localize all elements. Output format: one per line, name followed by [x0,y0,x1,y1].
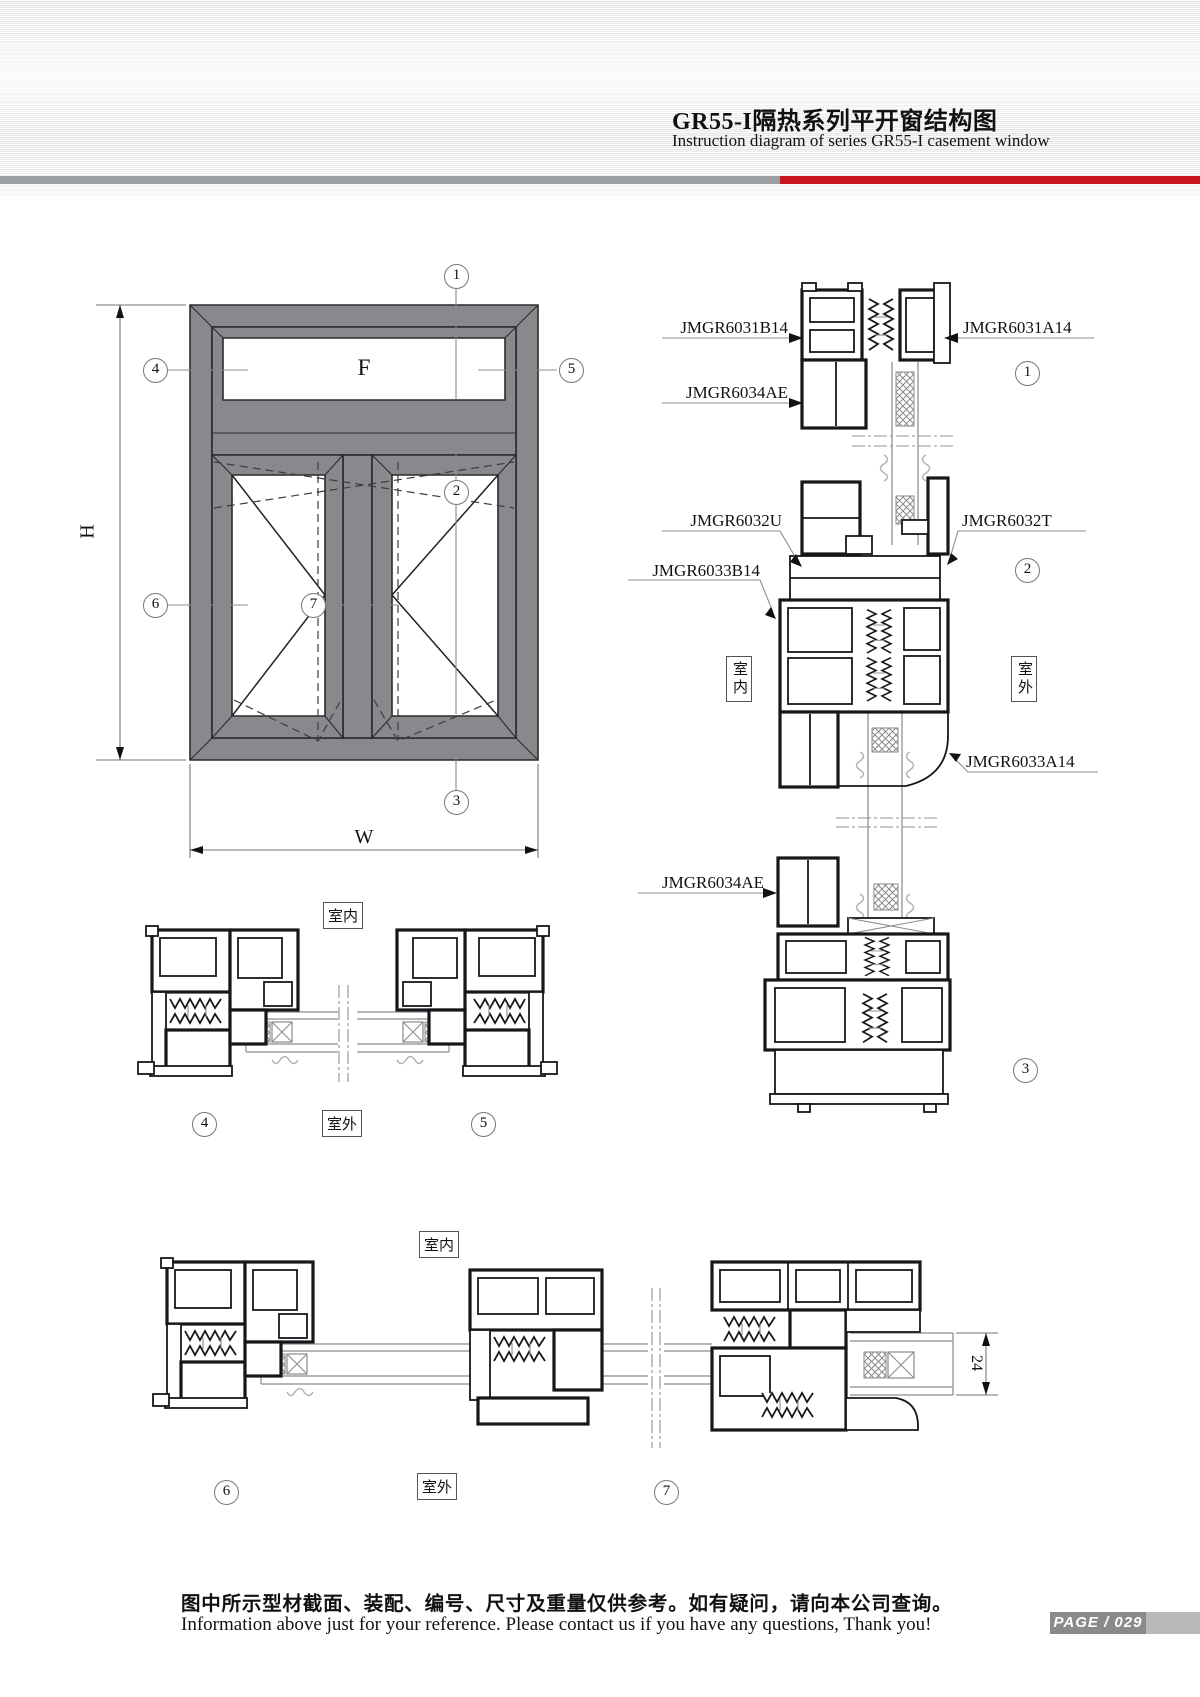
glass-thickness-label: 24 [963,1348,985,1378]
part-label-jmgr6033a14: JMGR6033A14 [966,752,1100,772]
part-label-jmgr6032u: JMGR6032U [658,511,782,531]
catalog-page: GR55-I隔热系列平开窗结构图 Instruction diagram of … [0,0,1200,1697]
callout-5: 5 [559,358,584,383]
part-label-jmgr6031a14: JMGR6031A14 [963,318,1095,338]
callout-4: 4 [143,358,168,383]
height-dimension [96,305,186,760]
part-label-jmgr6034ae-top: JMGR6034AE [660,383,788,403]
indoor-label-bottom: 室内 [419,1231,459,1258]
part-label-jmgr6033b14: JMGR6033B14 [626,561,760,581]
section-3-sill-profile [765,858,950,1112]
page-number-badge-tail [1146,1612,1200,1634]
callout-6: 6 [143,593,168,618]
section-callout-4: 4 [192,1112,217,1137]
section-callout-3: 3 [1013,1058,1038,1083]
callout-2: 2 [444,480,469,505]
footer-note-cn: 图中所示型材截面、装配、编号、尺寸及重量仅供参考。如有疑问，请向本公司查询。 [181,1587,952,1616]
section-callout-7: 7 [654,1480,679,1505]
section-2-transom-profile [780,478,948,787]
section-callout-1: 1 [1015,361,1040,386]
part-label-jmgr6031b14: JMGR6031B14 [660,318,788,338]
meeting-stile-profile [470,1270,602,1424]
page-number-badge: PAGE / 029 [1050,1612,1146,1634]
horizontal-section-6-7 [153,1258,998,1448]
footer-note-en: Information above just for your referenc… [181,1614,931,1636]
callout-7: 7 [301,593,326,618]
horizontal-section-4-5 [138,926,557,1082]
outdoor-label-bottom: 室外 [417,1473,457,1500]
section-callout-5: 5 [471,1112,496,1137]
part-label-jmgr6032t: JMGR6032T [962,511,1086,531]
section-1-head-profile [802,283,950,428]
drawing-canvas [0,0,1200,1697]
fixed-pane-label: F [352,355,376,381]
mullion-profile [712,1262,953,1430]
section-callout-2: 2 [1015,558,1040,583]
callout-1: 1 [444,264,469,289]
indoor-label-middle: 室内 [323,902,363,929]
width-dim-label: W [352,826,376,849]
part-label-jmgr6034ae-bottom: JMGR6034AE [636,873,764,893]
section-callout-6: 6 [214,1480,239,1505]
height-dim-label: H [77,520,100,544]
outdoor-label-vertical: 室外 [1011,656,1037,702]
callout-3: 3 [444,790,469,815]
indoor-label-vertical: 室内 [726,656,752,702]
outdoor-label-middle: 室外 [322,1110,362,1137]
